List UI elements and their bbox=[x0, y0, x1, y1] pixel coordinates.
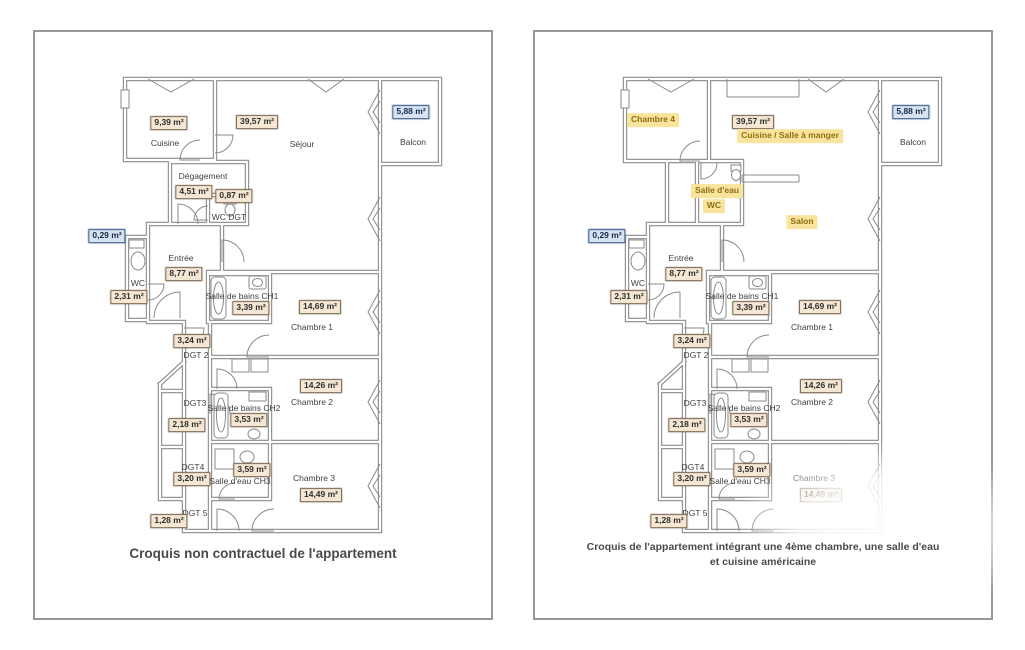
area-box-sdb-ch1: 3,39 m² bbox=[232, 301, 269, 315]
room-label-se-ch3: Salle d'eau CH3 bbox=[709, 477, 770, 487]
highlight-cuisine-salle-a-manger: Cuisine / Salle à manger bbox=[737, 129, 843, 143]
area-box-balcon: 5,88 m² bbox=[892, 105, 929, 119]
room-label-chambre3: Chambre 3 bbox=[293, 474, 335, 484]
area-box-sdb-ch2: 3,53 m² bbox=[730, 413, 767, 427]
room-label-sejour: Séjour bbox=[290, 140, 315, 150]
room-label-dgt3: DGT3 bbox=[684, 399, 707, 409]
area-box-sdb-ch2: 3,53 m² bbox=[230, 413, 267, 427]
area-box-wc: 2,31 m² bbox=[110, 290, 147, 304]
area-box-entree: 8,77 m² bbox=[165, 267, 202, 281]
caption-modified-plan-line1: Croquis de l'appartement intégrant une 4… bbox=[535, 541, 991, 553]
area-box-shaft: 0,29 m² bbox=[588, 229, 625, 243]
room-label-se-ch3: Salle d'eau CH3 bbox=[209, 477, 270, 487]
floor-plan-panel-original: 9,39 m² Cuisine 39,57 m² Séjour 5,88 m² … bbox=[33, 30, 493, 620]
room-label-entree: Entrée bbox=[168, 254, 193, 264]
caption-modified-plan-line2: et cuisine américaine bbox=[535, 556, 991, 568]
area-box-se-ch3: 3,59 m² bbox=[233, 463, 270, 477]
area-box-wc: 2,31 m² bbox=[610, 290, 647, 304]
area-box-dgt4: 3,20 m² bbox=[673, 472, 710, 486]
area-box-se-ch3: 3,59 m² bbox=[733, 463, 770, 477]
area-box-chambre3: 14,49 m² bbox=[300, 488, 342, 502]
highlight-wc: WC bbox=[703, 199, 725, 213]
room-label-balcon: Balcon bbox=[400, 138, 426, 148]
room-label-wc-dgt: WC DGT bbox=[212, 213, 246, 223]
area-box-dgt3: 2,18 m² bbox=[168, 418, 205, 432]
area-box-dgt5: 1,28 m² bbox=[650, 514, 687, 528]
room-label-chambre2: Chambre 2 bbox=[291, 398, 333, 408]
caption-original-plan: Croquis non contractuel de l'appartement bbox=[35, 546, 491, 561]
area-box-wc-dgt: 0,87 m² bbox=[215, 189, 252, 203]
room-label-degagement: Dégagement bbox=[179, 172, 228, 182]
highlight-salon: Salon bbox=[786, 215, 817, 229]
area-box-entree: 8,77 m² bbox=[665, 267, 702, 281]
area-box-dgt2: 3,24 m² bbox=[673, 334, 710, 348]
highlight-chambre4: Chambre 4 bbox=[627, 113, 679, 127]
area-box-sejour: 39,57 m² bbox=[236, 115, 278, 129]
room-label-chambre2: Chambre 2 bbox=[791, 398, 833, 408]
floor-plan-panel-modified: Chambre 4 39,57 m² Cuisine / Salle à man… bbox=[533, 30, 993, 620]
room-label-chambre3: Chambre 3 bbox=[793, 474, 835, 484]
room-label-cuisine: Cuisine bbox=[151, 139, 179, 149]
room-label-wc: WC bbox=[131, 279, 145, 289]
room-label-chambre1: Chambre 1 bbox=[291, 323, 333, 333]
area-box-degagement: 4,51 m² bbox=[175, 185, 212, 199]
room-label-chambre1: Chambre 1 bbox=[791, 323, 833, 333]
area-box-chambre2: 14,26 m² bbox=[300, 379, 342, 393]
room-label-dgt2: DGT 2 bbox=[684, 351, 709, 361]
area-box-dgt2: 3,24 m² bbox=[173, 334, 210, 348]
area-box-dgt5: 1,28 m² bbox=[150, 514, 187, 528]
room-label-balcon: Balcon bbox=[900, 138, 926, 148]
area-box-dgt3: 2,18 m² bbox=[668, 418, 705, 432]
room-label-entree: Entrée bbox=[668, 254, 693, 264]
area-box-shaft: 0,29 m² bbox=[88, 229, 125, 243]
area-box-chambre1: 14,69 m² bbox=[799, 300, 841, 314]
area-box-cuisine: 9,39 m² bbox=[150, 116, 187, 130]
room-label-dgt3: DGT3 bbox=[184, 399, 207, 409]
area-box-dgt4: 3,20 m² bbox=[173, 472, 210, 486]
room-label-wc: WC bbox=[631, 279, 645, 289]
area-box-chambre1: 14,69 m² bbox=[299, 300, 341, 314]
area-box-chambre2: 14,26 m² bbox=[800, 379, 842, 393]
area-box-sejour: 39,57 m² bbox=[732, 115, 774, 129]
room-label-dgt2: DGT 2 bbox=[184, 351, 209, 361]
area-box-balcon: 5,88 m² bbox=[392, 105, 429, 119]
area-box-chambre3: 14,49 m² bbox=[800, 488, 842, 502]
area-box-sdb-ch1: 3,39 m² bbox=[732, 301, 769, 315]
highlight-salle-deau: Salle d'eau bbox=[691, 184, 743, 198]
